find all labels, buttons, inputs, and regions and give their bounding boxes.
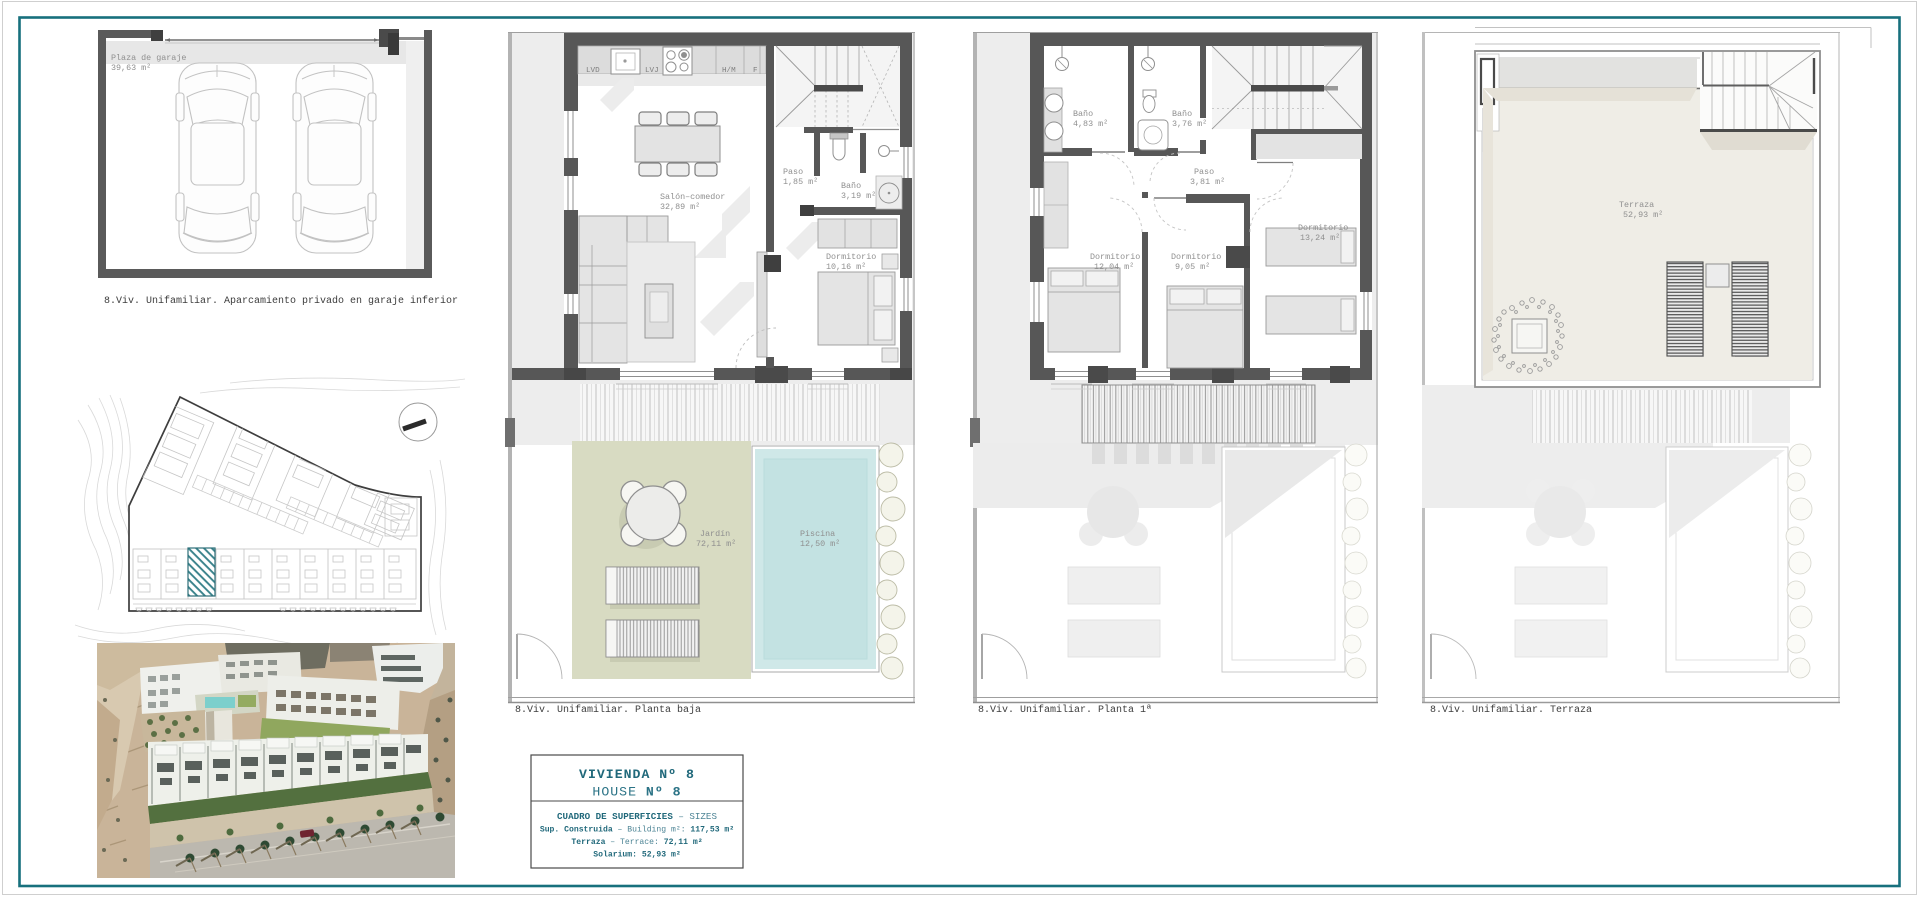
svg-text:10,16 m²: 10,16 m² <box>826 262 866 272</box>
svg-text:Dormitorio: Dormitorio <box>826 252 876 262</box>
svg-text:3,19 m²: 3,19 m² <box>841 191 876 201</box>
svg-text:Salón–comedor: Salón–comedor <box>660 192 725 202</box>
svg-text:8.Viv. Unifamiliar. Planta baj: 8.Viv. Unifamiliar. Planta baja <box>515 704 701 716</box>
svg-text:H/M: H/M <box>722 67 736 75</box>
svg-text:Sup. Construida – Building m²:: Sup. Construida – Building m²: 117,53 m² <box>540 826 734 835</box>
svg-text:Dormitorio: Dormitorio <box>1090 252 1140 262</box>
svg-text:72,11 m²: 72,11 m² <box>696 539 736 549</box>
svg-text:Plaza de garaje: Plaza de garaje <box>111 53 186 63</box>
svg-text:Dormitorio: Dormitorio <box>1298 223 1348 233</box>
svg-text:Paso: Paso <box>1194 167 1214 177</box>
svg-text:Paso: Paso <box>783 167 803 177</box>
svg-text:F: F <box>753 67 758 75</box>
svg-text:Baño: Baño <box>1073 109 1093 119</box>
svg-text:Baño: Baño <box>1172 109 1192 119</box>
svg-text:12,04 m²: 12,04 m² <box>1094 262 1134 272</box>
svg-text:LVD: LVD <box>586 67 600 75</box>
svg-text:32,89 m²: 32,89 m² <box>660 202 700 212</box>
svg-text:8.Viv. Unifamiliar. Aparcamien: 8.Viv. Unifamiliar. Aparcamiento privado… <box>104 295 458 307</box>
svg-text:12,50 m²: 12,50 m² <box>800 539 840 549</box>
svg-text:3,81 m²: 3,81 m² <box>1190 177 1225 187</box>
svg-text:Terraza – Terrace: 72,11 m²: Terraza – Terrace: 72,11 m² <box>571 838 702 847</box>
svg-text:8.Viv. Unifamiliar. Planta 1ª: 8.Viv. Unifamiliar. Planta 1ª <box>978 704 1152 716</box>
svg-text:VIVIENDA Nº 8: VIVIENDA Nº 8 <box>579 767 695 782</box>
svg-text:Baño: Baño <box>841 181 861 191</box>
svg-text:Piscina: Piscina <box>800 529 835 539</box>
svg-text:8.Viv. Unifamiliar. Terraza: 8.Viv. Unifamiliar. Terraza <box>1430 704 1592 716</box>
svg-text:HOUSE Nº 8: HOUSE Nº 8 <box>592 785 681 800</box>
svg-text:Solarium: 52,93 m²: Solarium: 52,93 m² <box>593 851 680 860</box>
svg-text:13,24 m²: 13,24 m² <box>1300 233 1340 243</box>
svg-text:CUADRO DE SUPERFICIES – SIZES: CUADRO DE SUPERFICIES – SIZES <box>557 811 717 822</box>
svg-text:39,63 m²: 39,63 m² <box>111 63 151 73</box>
svg-text:Jardín: Jardín <box>700 529 730 539</box>
svg-text:1,85 m²: 1,85 m² <box>783 177 818 187</box>
svg-text:LVJ: LVJ <box>645 67 659 75</box>
svg-text:4,83 m²: 4,83 m² <box>1073 119 1108 129</box>
svg-text:9,05 m²: 9,05 m² <box>1175 262 1210 272</box>
svg-text:Terraza: Terraza <box>1619 200 1654 210</box>
svg-text:52,93 m²: 52,93 m² <box>1623 210 1663 220</box>
svg-text:Dormitorio: Dormitorio <box>1171 252 1221 262</box>
svg-text:3,76 m²: 3,76 m² <box>1172 119 1207 129</box>
